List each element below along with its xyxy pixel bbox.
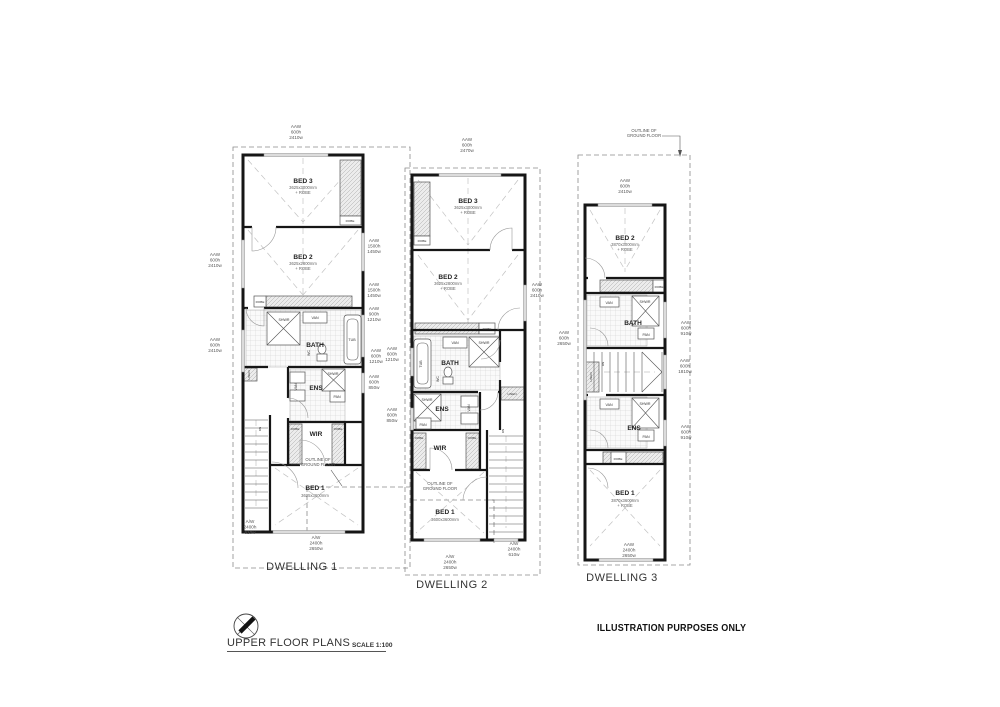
d1-window-label-top: AAW600h2410w bbox=[289, 124, 303, 140]
d2-name: DWELLING 2 bbox=[416, 579, 488, 591]
title-underline bbox=[227, 651, 386, 652]
d2-window-label-top: AAW600h2470w bbox=[460, 137, 474, 153]
d1-bed1-label: BED 1 bbox=[305, 485, 325, 492]
d2-bed2-robe-label: ROBE bbox=[483, 327, 492, 331]
d3-linen-label: LINEN bbox=[589, 372, 593, 381]
d2-tub-label: TUB bbox=[419, 360, 423, 368]
d1-bed2-dims: 3625x2800mm+ ROBE bbox=[289, 261, 317, 271]
d2-wir-label: WIR bbox=[434, 445, 447, 452]
d1-wc-label: WC bbox=[307, 350, 311, 356]
d2-bed3-robe-label: ROBE bbox=[418, 239, 427, 243]
d1-tub-label: TUB bbox=[348, 338, 356, 342]
d2-shwr-label: SHWR bbox=[479, 341, 490, 345]
d1-window-label-bottom: A/W2400h2650w bbox=[309, 535, 323, 551]
d2-bed2-dims: 3625x2800mm+ ROBE bbox=[434, 281, 462, 291]
d3-window-label-top: AAW600h2410w bbox=[618, 178, 632, 194]
d3-bed2-label: BED 2 bbox=[615, 235, 635, 242]
d3-bath-label: BATH bbox=[624, 320, 642, 327]
d3-window-label-left1: AAW600h2650w bbox=[557, 330, 571, 346]
d2-ens-van-label: VAN bbox=[467, 404, 471, 412]
d1-pan-label: PAN bbox=[333, 395, 341, 399]
d2-window-label-left1: AAW600h1210w bbox=[385, 346, 399, 362]
d2-bed3-dims: 3625x3000mm+ ROBE bbox=[454, 205, 482, 215]
d1-ens-label: ENS bbox=[309, 385, 323, 392]
d2-pan-label: PAN bbox=[419, 423, 427, 427]
d3-window-label-right3: AAW600h910w bbox=[681, 424, 693, 440]
d3-ens-shwr-label: SHWR bbox=[640, 402, 651, 406]
d3-leader-arrow bbox=[678, 150, 682, 157]
d2-window-label-bottom: A/W2400h2650w bbox=[443, 554, 457, 570]
d3-ens-pan-label: PAN bbox=[642, 435, 650, 439]
d2-outline-note: OUTLINE OFGROUND FLOOR bbox=[423, 481, 457, 491]
d1-wir-robe-right-label: ROBE bbox=[334, 427, 343, 431]
d3-window-label-bottom: AAW2400h2650w bbox=[622, 542, 636, 558]
d2-bed1-dims: 3600x3600mm bbox=[431, 517, 459, 522]
d1-bed2-label: BED 2 bbox=[293, 254, 313, 261]
plan-linework: AAW600h2410w AAW600h2410w AAW600h2410w A… bbox=[0, 0, 1000, 707]
d2-van-label: VAN bbox=[451, 341, 459, 345]
d1-window-label-left2: AAW600h2410w bbox=[208, 337, 222, 353]
d3-labels: OUTLINE OFGROUND FLOOR AAW600h2410w AAW6… bbox=[557, 128, 692, 584]
d1-wir-robe-left-label: ROBE bbox=[291, 427, 300, 431]
north-arrow-icon bbox=[234, 614, 258, 638]
d2-wir-robe-left-label: ROBE bbox=[415, 436, 424, 440]
d1-shwr-label: SHWR bbox=[279, 318, 290, 322]
illustration-note: ILLUSTRATION PURPOSES ONLY bbox=[597, 623, 746, 634]
d3-bed1-label: BED 1 bbox=[615, 490, 635, 497]
d2-wc-label: WC bbox=[436, 376, 440, 382]
d1-window-label-right5: AAW600h850w bbox=[369, 374, 381, 390]
d3-robe-top-label: ROBE bbox=[655, 285, 664, 289]
d3-bed1-dims: 3870x3600mm+ ROBE bbox=[611, 498, 639, 508]
d3-bed2-dims: 3870x3000mm+ ROBE bbox=[611, 242, 639, 252]
d1-bed1-dims: 3625x3600mm bbox=[301, 493, 329, 498]
d1-van-label: VAN bbox=[311, 316, 319, 320]
dwelling-3-plan: OUTLINE OFGROUND FLOOR AAW600h2410w AAW6… bbox=[557, 128, 692, 584]
d1-outline-leader bbox=[291, 464, 342, 486]
d3-robe-bottom-label: ROBE bbox=[614, 457, 623, 461]
d1-bed3-label: BED 3 bbox=[293, 178, 313, 185]
d2-bed2-label: BED 2 bbox=[438, 274, 458, 281]
d1-window-label-right3: AAW900h1210w bbox=[367, 306, 381, 322]
sheet-scale: SCALE 1:100 bbox=[352, 642, 392, 649]
d3-window-label-right1: AAW600h910w bbox=[681, 320, 693, 336]
d3-dn-label: DN bbox=[601, 362, 605, 366]
d1-ens-van-label: VAN bbox=[294, 383, 298, 391]
d1-linen-label: LINEN bbox=[247, 370, 251, 379]
d2-bed1-label: BED 1 bbox=[435, 509, 455, 516]
d1-name: DWELLING 1 bbox=[266, 561, 338, 573]
d3-pan-label: PAN bbox=[642, 333, 650, 337]
d1-bath-label: BATH bbox=[306, 342, 324, 349]
dwelling-2-plan: AAW600h2470w AAW600h1210w AAW600h850w AA… bbox=[385, 137, 544, 591]
d3-van-label: VAN bbox=[605, 301, 613, 305]
d2-wir-robe-right-label: ROBE bbox=[468, 436, 477, 440]
d1-stairs bbox=[245, 420, 268, 508]
d2-dn-label: DN bbox=[501, 429, 505, 433]
d3-ens-label: ENS bbox=[627, 425, 641, 432]
dwelling-1-plan: AAW600h2410w AAW600h2410w AAW600h2410w A… bbox=[208, 124, 410, 573]
d1-window-label-right4: AAW600h1210w bbox=[369, 348, 383, 364]
d1-dn-label: DN bbox=[258, 427, 262, 431]
d2-linen-label: LINEN bbox=[507, 392, 516, 396]
d2-bed3-label: BED 3 bbox=[458, 198, 478, 205]
d3-ens-van-label: VAN bbox=[605, 403, 613, 407]
d3-outline-note: OUTLINE OFGROUND FLOOR bbox=[627, 128, 661, 138]
d2-ens-label: ENS bbox=[435, 406, 449, 413]
d1-window-label-right2: AAW1500h1450w bbox=[367, 282, 381, 298]
d2-window-label-right1: AAW600h2410w bbox=[530, 282, 544, 298]
d2-bath-label: BATH bbox=[441, 360, 459, 367]
d1-wir-label: WIR bbox=[310, 431, 323, 438]
d2-window-label-botright: A/W2400h610w bbox=[508, 541, 521, 557]
d3-name: DWELLING 3 bbox=[586, 572, 658, 584]
d1-bed2-robe-label: ROBE bbox=[256, 300, 265, 304]
sheet-title: UPPER FLOOR PLANS bbox=[227, 637, 350, 649]
d1-bed3-dims: 3625x3000mm+ ROBE bbox=[289, 185, 317, 195]
d1-outline-note: OUTLINE OFGROUND FLOOR bbox=[301, 457, 335, 467]
d2-window-label-left2: AAW600h850w bbox=[387, 407, 399, 423]
d1-window-label-botleft: A/W2400h610w bbox=[244, 519, 257, 535]
d1-window-label-left1: AAW600h2410w bbox=[208, 252, 222, 268]
floor-plan-sheet: AAW600h2410w AAW600h2410w AAW600h2410w A… bbox=[0, 0, 1000, 707]
d3-shwr-label: SHWR bbox=[640, 300, 651, 304]
d1-bed3-robe-label: ROBE bbox=[346, 219, 355, 223]
d1-ens-shwr-label: SHWR bbox=[328, 372, 339, 376]
d2-ens-shwr-label: SHWR bbox=[422, 398, 433, 402]
d1-window-label-right1: AAW1500h1450w bbox=[367, 238, 381, 254]
d1-floor-finishes bbox=[244, 160, 361, 464]
